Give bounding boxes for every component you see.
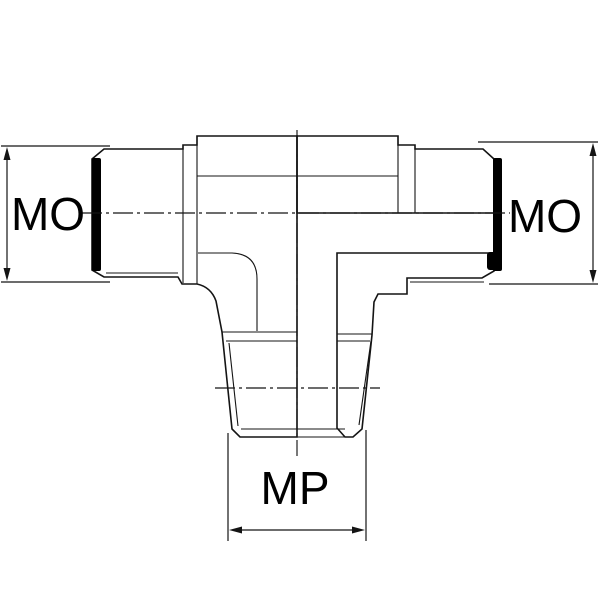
mp-arrow-right bbox=[352, 527, 365, 534]
section-thread-shoulder-lines bbox=[337, 334, 372, 341]
section-hatch-area bbox=[337, 253, 494, 437]
left-mo-arrow-up bbox=[4, 147, 11, 160]
left-bore-projection-line bbox=[198, 253, 257, 331]
left-thread-shoulder-lines bbox=[222, 332, 297, 341]
right-body-silhouette bbox=[297, 136, 494, 213]
o-ring-band-right bbox=[487, 158, 502, 271]
flange-face-lines-left bbox=[183, 136, 197, 284]
left-body-silhouette bbox=[92, 136, 297, 437]
drawing-canvas: MO MO MP bbox=[0, 0, 600, 600]
mp-label: MP bbox=[261, 462, 330, 514]
flange-face-lines-right bbox=[398, 136, 415, 213]
fitting-left-half bbox=[92, 136, 297, 437]
right-mo-arrow-up bbox=[590, 143, 597, 156]
right-mo-label: MO bbox=[508, 190, 582, 242]
o-ring-band-left bbox=[92, 158, 101, 271]
o-ring-right-section bbox=[487, 252, 501, 270]
fitting-right-upper-half bbox=[297, 136, 494, 213]
left-mo-arrow-down bbox=[4, 268, 11, 281]
o-ring-left bbox=[92, 158, 101, 271]
section-material-outline bbox=[337, 253, 494, 437]
right-mo-arrow-down bbox=[590, 270, 597, 283]
mp-arrow-left bbox=[229, 527, 242, 534]
fitting-technical-drawing: MO MO MP bbox=[0, 0, 600, 600]
section-thread-root-line bbox=[359, 341, 371, 425]
left-mo-label: MO bbox=[11, 188, 85, 240]
